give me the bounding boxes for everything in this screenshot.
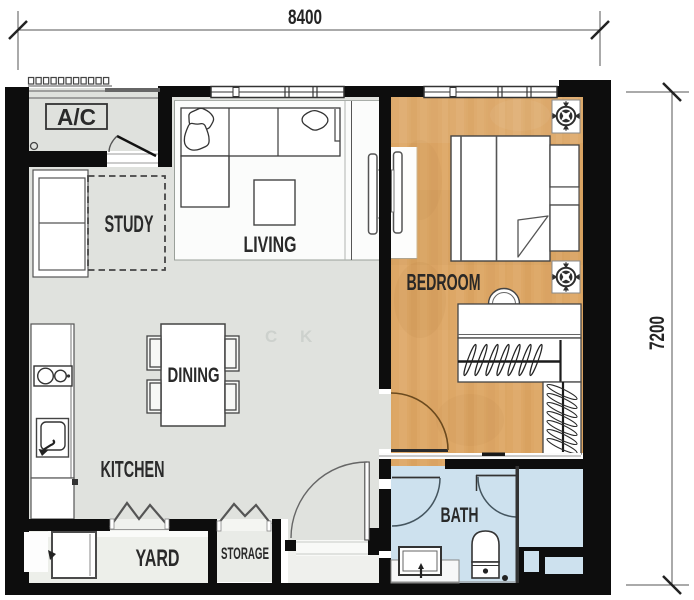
svg-text:YARD: YARD (136, 545, 180, 572)
svg-text:DINING: DINING (168, 364, 220, 387)
svg-text:BEDROOM: BEDROOM (407, 269, 481, 295)
svg-text:BATH: BATH (441, 504, 479, 527)
svg-text:C: C (265, 327, 277, 346)
svg-text:7200: 7200 (646, 316, 669, 350)
svg-text:STUDY: STUDY (105, 211, 154, 238)
svg-text:LIVING: LIVING (244, 232, 297, 257)
svg-text:STORAGE: STORAGE (221, 544, 269, 563)
svg-text:K: K (300, 327, 313, 346)
svg-text:A/C: A/C (57, 104, 96, 130)
svg-text:8400: 8400 (288, 6, 322, 29)
svg-text:KITCHEN: KITCHEN (101, 456, 165, 482)
